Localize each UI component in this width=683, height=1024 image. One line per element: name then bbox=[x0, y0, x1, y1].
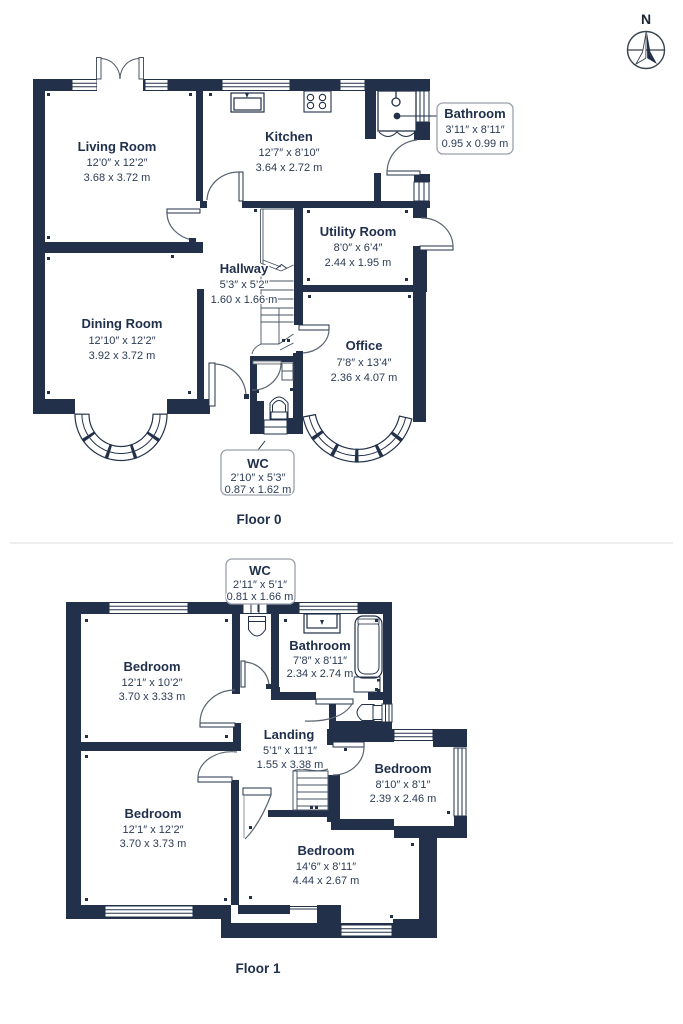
svg-text:Landing: Landing bbox=[264, 727, 315, 742]
svg-text:Bathroom: Bathroom bbox=[289, 638, 350, 653]
svg-text:2’11″ x 5’1″: 2’11″ x 5’1″ bbox=[233, 579, 287, 591]
svg-text:Bathroom: Bathroom bbox=[444, 106, 505, 121]
svg-text:4.44 x 2.67 m: 4.44 x 2.67 m bbox=[293, 875, 360, 887]
svg-text:0.81 x 1.66 m: 0.81 x 1.66 m bbox=[227, 591, 294, 603]
svg-text:3’11″ x 8’11″: 3’11″ x 8’11″ bbox=[445, 124, 504, 136]
svg-text:Hallway: Hallway bbox=[220, 261, 269, 276]
svg-text:Bedroom: Bedroom bbox=[123, 659, 180, 674]
svg-text:5’1″ x 11’1″: 5’1″ x 11’1″ bbox=[263, 745, 317, 757]
svg-text:1.55 x 3.38 m: 1.55 x 3.38 m bbox=[257, 759, 324, 771]
svg-text:12’1″ x 10’2″: 12’1″ x 10’2″ bbox=[122, 677, 183, 689]
svg-text:Bedroom: Bedroom bbox=[124, 806, 181, 821]
svg-text:Utility Room: Utility Room bbox=[320, 224, 397, 239]
svg-text:Floor 1: Floor 1 bbox=[235, 961, 280, 976]
svg-text:2.39 x 2.46 m: 2.39 x 2.46 m bbox=[370, 793, 437, 805]
svg-text:WC: WC bbox=[247, 456, 269, 471]
svg-text:Office: Office bbox=[346, 338, 383, 353]
svg-text:Floor 0: Floor 0 bbox=[236, 512, 281, 527]
svg-text:3.92 x 3.72 m: 3.92 x 3.72 m bbox=[89, 350, 156, 362]
svg-text:0.87 x 1.62 m: 0.87 x 1.62 m bbox=[225, 484, 292, 496]
svg-text:Dining Room: Dining Room bbox=[82, 316, 163, 331]
svg-text:7’8″ x 13’4″: 7’8″ x 13’4″ bbox=[337, 357, 392, 369]
svg-text:WC: WC bbox=[249, 563, 271, 578]
svg-text:2.34 x 2.74 m: 2.34 x 2.74 m bbox=[287, 668, 354, 680]
svg-text:Kitchen: Kitchen bbox=[265, 129, 313, 144]
svg-text:5’3″ x 5’2″: 5’3″ x 5’2″ bbox=[220, 279, 269, 291]
svg-text:2.36 x 4.07 m: 2.36 x 4.07 m bbox=[331, 372, 398, 384]
svg-text:Bedroom: Bedroom bbox=[374, 761, 431, 776]
svg-text:3.70 x 3.33 m: 3.70 x 3.33 m bbox=[119, 691, 186, 703]
svg-text:0.95 x 0.99 m: 0.95 x 0.99 m bbox=[442, 138, 509, 150]
svg-text:1.60 x 1.66 m: 1.60 x 1.66 m bbox=[211, 294, 278, 306]
svg-text:8’0″ x 6’4″: 8’0″ x 6’4″ bbox=[334, 242, 383, 254]
svg-text:3.70 x 3.73 m: 3.70 x 3.73 m bbox=[120, 838, 187, 850]
svg-text:2.44 x 1.95 m: 2.44 x 1.95 m bbox=[325, 257, 392, 269]
svg-text:14’6″ x 8’11″: 14’6″ x 8’11″ bbox=[296, 861, 356, 873]
svg-text:12’7″ x 8’10″: 12’7″ x 8’10″ bbox=[259, 147, 320, 159]
svg-text:12’10″ x 12’2″: 12’10″ x 12’2″ bbox=[88, 335, 155, 347]
svg-text:3.68 x 3.72 m: 3.68 x 3.72 m bbox=[84, 172, 151, 184]
svg-text:12’0″ x 12’2″: 12’0″ x 12’2″ bbox=[87, 157, 148, 169]
svg-text:7’8″ x 8’11″: 7’8″ x 8’11″ bbox=[293, 655, 347, 667]
svg-text:2’10″ x 5’3″: 2’10″ x 5’3″ bbox=[231, 472, 286, 484]
svg-text:12’1″ x 12’2″: 12’1″ x 12’2″ bbox=[123, 824, 184, 836]
svg-text:Bedroom: Bedroom bbox=[297, 843, 354, 858]
svg-text:N: N bbox=[641, 11, 651, 27]
svg-text:Living Room: Living Room bbox=[78, 139, 157, 154]
svg-text:3.64 x 2.72 m: 3.64 x 2.72 m bbox=[256, 162, 323, 174]
svg-text:8’10″ x 8’1″: 8’10″ x 8’1″ bbox=[376, 779, 431, 791]
